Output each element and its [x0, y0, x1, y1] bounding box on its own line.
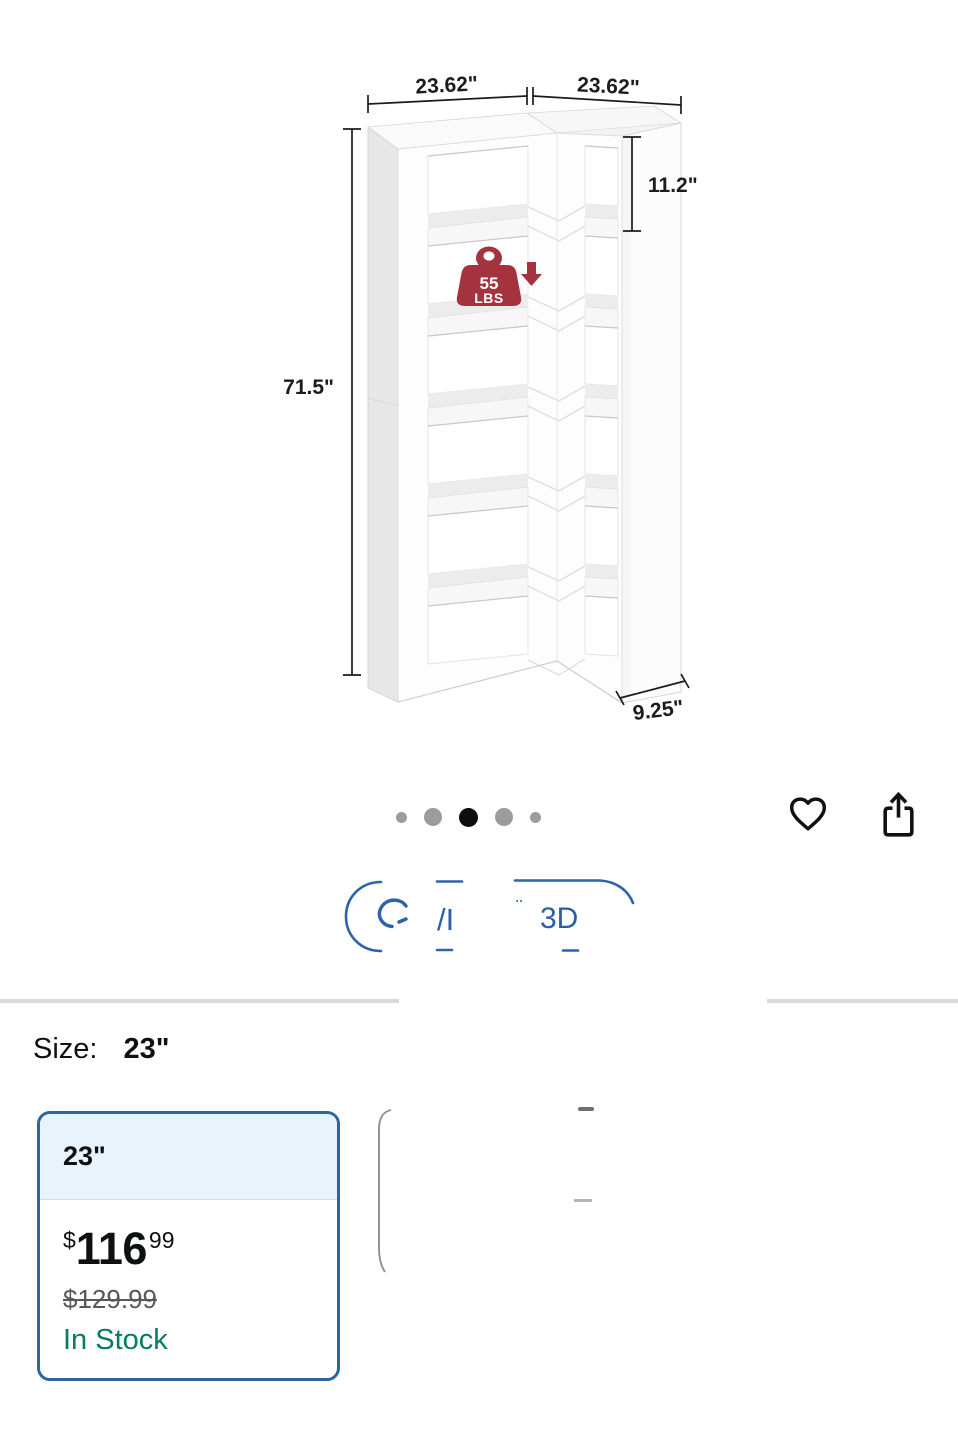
- dimension-label-width-left: 23.62": [415, 72, 479, 98]
- dimension-label-width-right: 23.62": [577, 73, 641, 99]
- swatch-body: $ 116 99 $129.99 In Stock: [40, 1200, 337, 1357]
- heart-icon: [786, 791, 830, 839]
- view3d-fragment-1: /I: [437, 902, 454, 937]
- corner-bookshelf: [368, 106, 681, 703]
- share-button[interactable]: [878, 788, 919, 842]
- list-price: $129.99: [63, 1284, 314, 1315]
- product-image[interactable]: 23.62" 23.62" 11.2" 71.5" 9.25" 55 LBS: [0, 0, 958, 770]
- price: $ 116 99: [63, 1226, 314, 1271]
- availability-status: In Stock: [63, 1324, 314, 1357]
- unloaded-swatch-fragment: [578, 1107, 594, 1111]
- view-in-3d-button[interactable]: /I ¨ 3D: [0, 870, 958, 970]
- carousel-dot-2[interactable]: [424, 808, 442, 826]
- carousel-dots: [396, 806, 541, 828]
- size-section-header: Size: 23": [33, 1033, 170, 1066]
- carousel-dot-3-active[interactable]: [459, 808, 478, 827]
- wishlist-button[interactable]: [786, 791, 830, 839]
- dimension-label-height: 71.5": [283, 376, 334, 399]
- section-divider-right: [767, 999, 958, 1003]
- carousel-dot-4[interactable]: [495, 808, 513, 826]
- carousel-dot-1[interactable]: [396, 812, 407, 823]
- view3d-fragment-3: 3D: [540, 902, 578, 935]
- left-side-panel: [368, 127, 398, 702]
- right-wing-shelves: [585, 146, 618, 656]
- weight-unit: LBS: [474, 290, 504, 306]
- unloaded-swatch-border: [370, 1106, 400, 1278]
- view-in-3d-outline: /I ¨ 3D: [0, 870, 958, 970]
- dimension-label-shelf-spacing: 11.2": [648, 174, 698, 197]
- price-cents: 99: [149, 1229, 175, 1252]
- bookshelf-illustration: 23.62" 23.62" 11.2" 71.5" 9.25" 55 LBS: [0, 0, 958, 770]
- size-label: Size:: [33, 1033, 97, 1066]
- left-wing-shelves: [428, 146, 528, 664]
- size-option-23-selected[interactable]: 23" $ 116 99 $129.99 In Stock: [37, 1111, 340, 1381]
- price-symbol: $: [63, 1229, 76, 1252]
- product-page: 23.62" 23.62" 11.2" 71.5" 9.25" 55 LBS: [0, 0, 958, 1440]
- dimension-label-depth: 9.25": [632, 696, 685, 725]
- size-selected-value: 23": [123, 1033, 169, 1066]
- swatch-header: 23": [40, 1114, 337, 1200]
- carousel-dot-5[interactable]: [530, 812, 541, 823]
- unloaded-swatch-fragment: [574, 1199, 592, 1202]
- section-divider-left: [0, 999, 399, 1003]
- swatch-size-name: 23": [63, 1141, 106, 1172]
- price-whole: 116: [76, 1226, 147, 1271]
- view3d-fragment-2: ¨: [516, 897, 523, 919]
- share-icon: [878, 788, 919, 842]
